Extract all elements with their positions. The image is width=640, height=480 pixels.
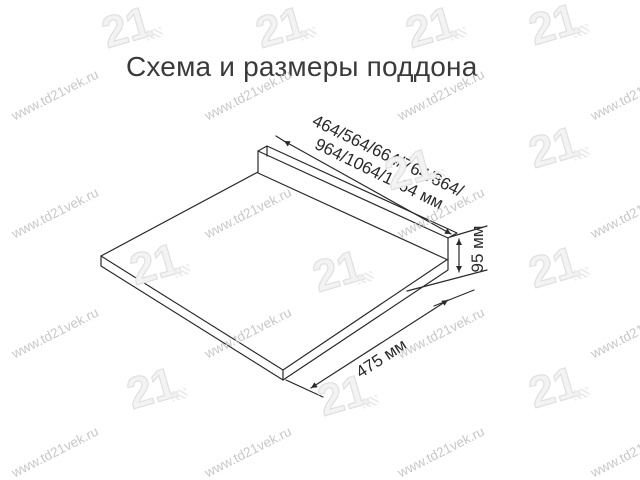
dim-depth-label: 475 мм	[352, 335, 410, 382]
dim-depth-extension-right	[434, 290, 474, 306]
dim-depth-label-group: 475 мм	[352, 335, 410, 382]
dim-width-extension-left	[276, 136, 284, 141]
page-title: Схема и размеры поддона	[126, 51, 477, 83]
dim-depth-extension-left	[286, 380, 323, 397]
diagram-page: Схема и размеры поддона	[0, 0, 640, 480]
dim-height-label: 95 мм	[468, 225, 487, 272]
